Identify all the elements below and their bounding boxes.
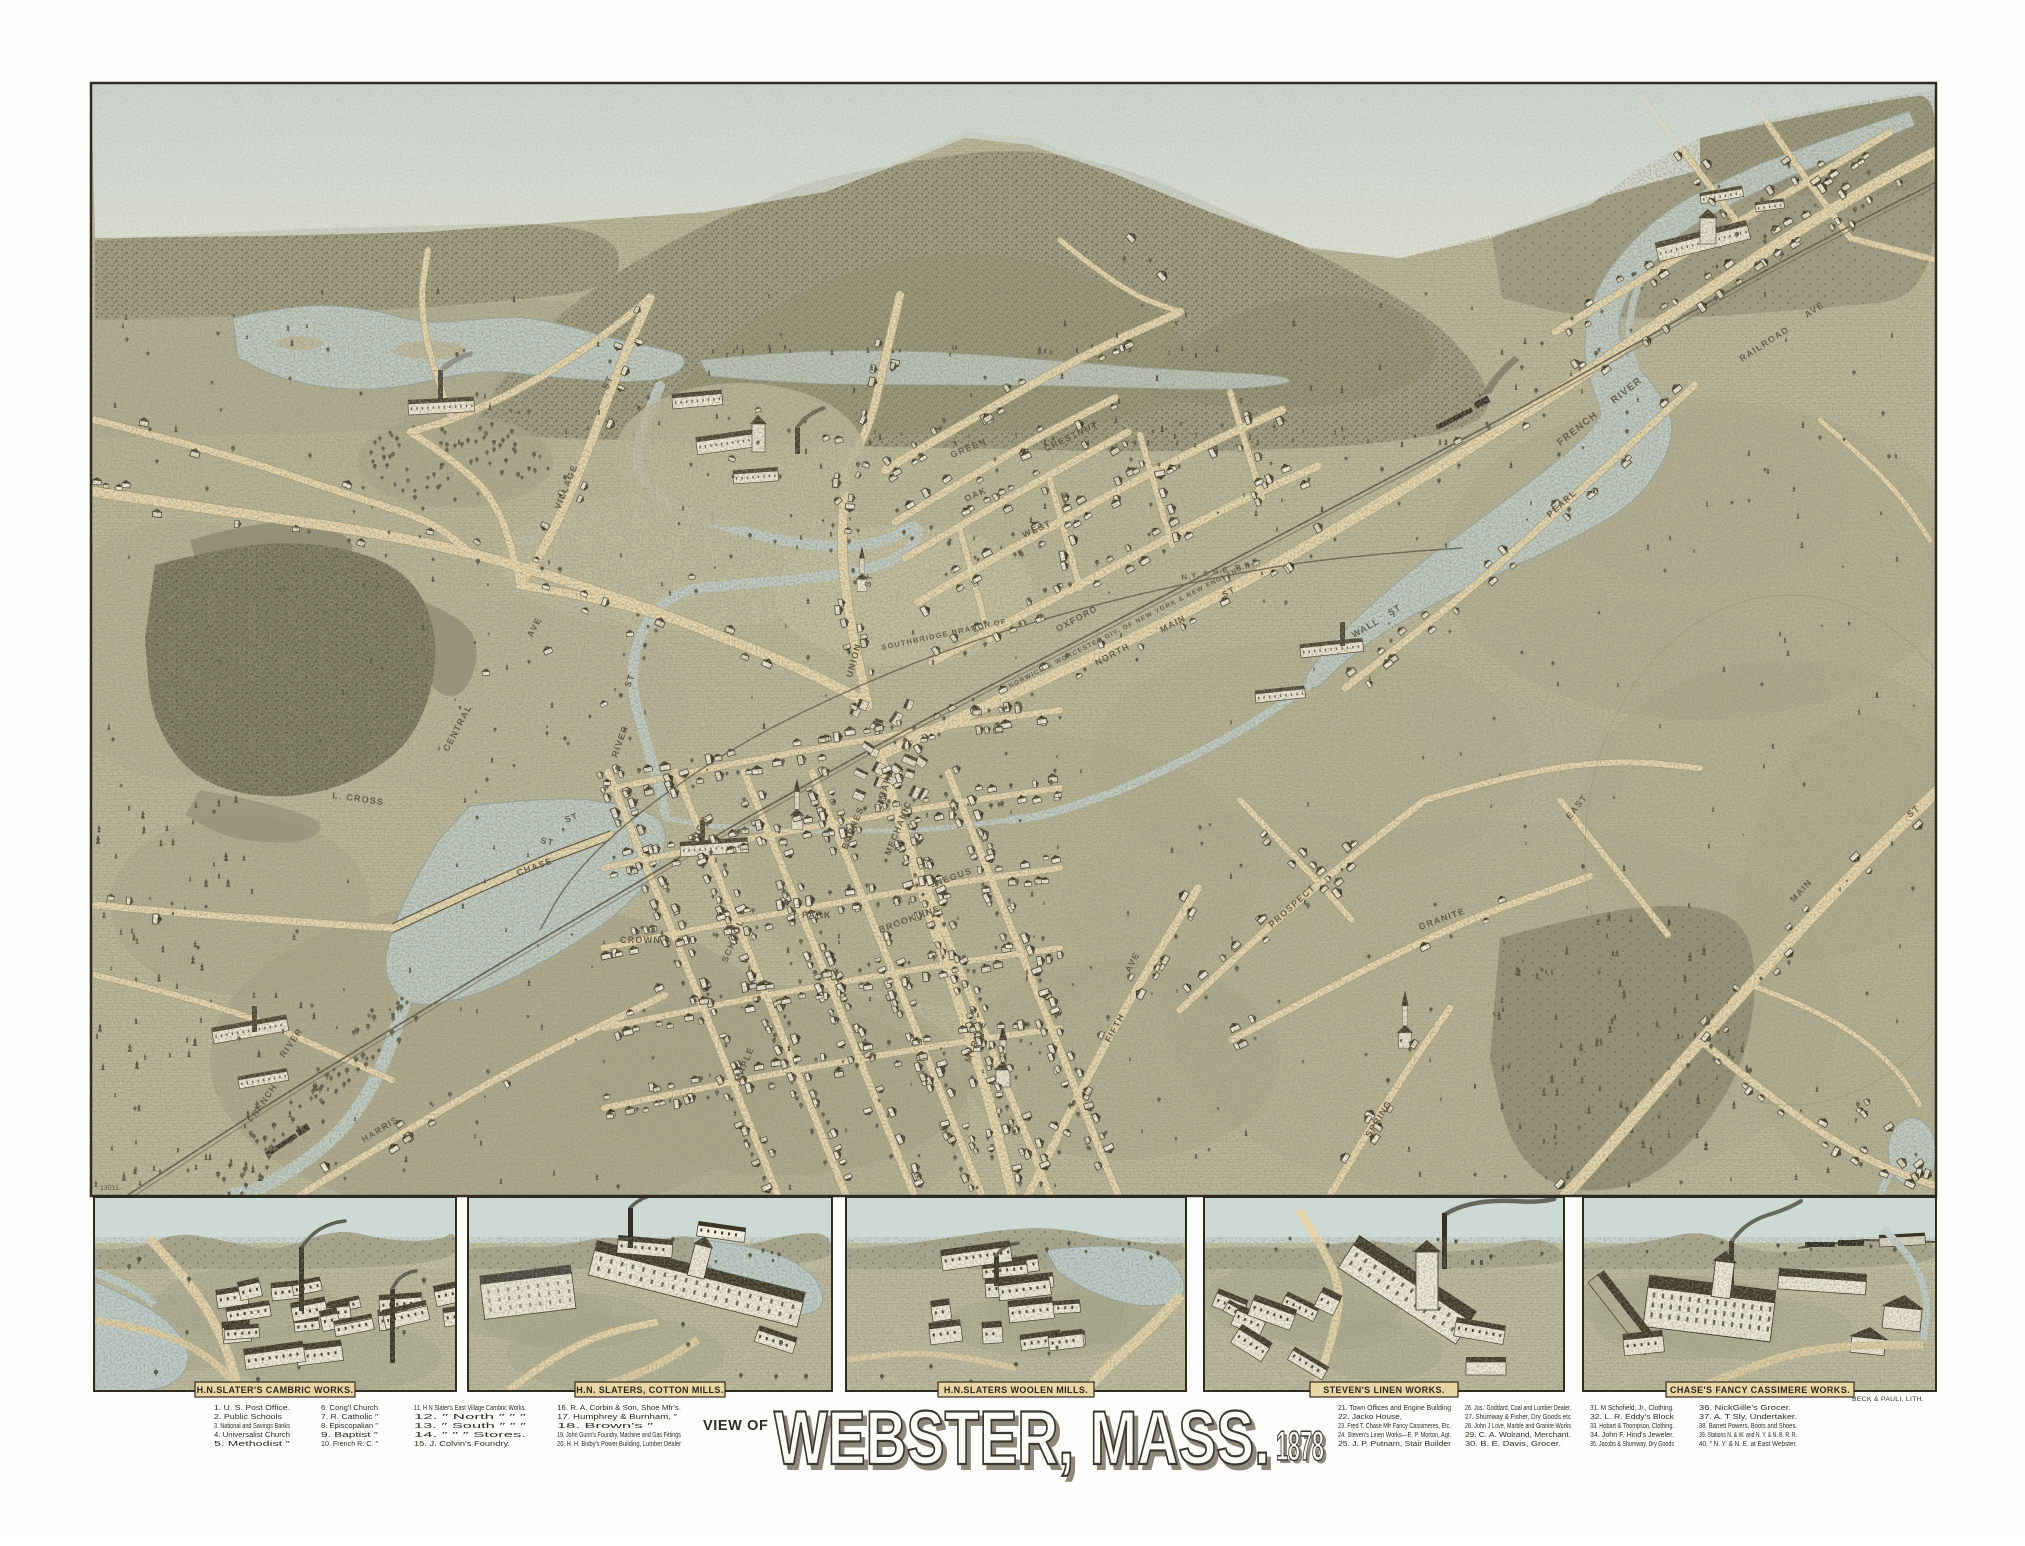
svg-text:17. Humphrey & Burnham, ″: 17. Humphrey & Burnham, ″: [557, 1414, 678, 1421]
svg-text:5. Methodist ″: 5. Methodist ″: [214, 1441, 291, 1448]
svg-text:1878: 1878: [1276, 1422, 1324, 1469]
svg-text:22. Jacko House,: 22. Jacko House,: [1338, 1414, 1402, 1421]
svg-text:33. Hobart & Thompson, Clothin: 33. Hobart & Thompson, Clothing.: [1590, 1423, 1674, 1430]
svg-text:20. H. H. Bixby's Power Buildi: 20. H. H. Bixby's Power Building, Lumber…: [557, 1441, 682, 1448]
svg-text:25. J. P. Putnam, Stair Builde: 25. J. P. Putnam, Stair Builder: [1338, 1441, 1452, 1448]
svg-text:24. Steven's Linen Works—E. P.: 24. Steven's Linen Works—E. P. Morton, A…: [1338, 1432, 1451, 1439]
svg-text:10. French R. C. ″: 10. French R. C. ″: [321, 1441, 379, 1448]
svg-text:38. Barrett Powers, Boots and: 38. Barrett Powers, Boots and Shoes.: [1699, 1423, 1797, 1430]
svg-text:9. Baptist ″: 9. Baptist ″: [321, 1432, 379, 1439]
svg-text:CHASE'S FANCY CASSIMERE WORKS.: CHASE'S FANCY CASSIMERE WORKS.: [1670, 1385, 1850, 1395]
svg-text:14. ″ ″ ″ St: 14. ″ ″ ″ Stores.: [414, 1432, 526, 1439]
svg-text:39. Stations N. & W. and N. Y.: 39. Stations N. & W. and N. Y. & N. B. R…: [1699, 1432, 1797, 1439]
svg-text:H.N. SLATERS, COTTON MILLS.: H.N. SLATERS, COTTON MILLS.: [576, 1385, 723, 1395]
svg-text:35. Jacobs & Shumway, Dry Good: 35. Jacobs & Shumway, Dry Goods: [1590, 1441, 1674, 1448]
svg-text:28. John J Love, Marble and Gr: 28. John J Love, Marble and Granite Work…: [1465, 1423, 1571, 1430]
svg-text:34. John F. Hind's Jeweler.: 34. John F. Hind's Jeweler.: [1590, 1432, 1674, 1439]
svg-text:16. R. A. Corbin & Son, Shoe M: 16. R. A. Corbin & Son, Shoe Mfr's.: [557, 1405, 681, 1412]
svg-text:15. J. Colvin's Foundry.: 15. J. Colvin's Foundry.: [414, 1441, 510, 1448]
svg-text:4. Universalist Church: 4. Universalist Church: [214, 1432, 290, 1439]
svg-text:H.N.SLATER'S CAMBRIC WORKS.: H.N.SLATER'S CAMBRIC WORKS.: [197, 1385, 354, 1395]
svg-text:WEBSTER, MASS.: WEBSTER, MASS.: [774, 1396, 1270, 1481]
svg-text:8. Episcopalian ″: 8. Episcopalian ″: [321, 1423, 379, 1430]
svg-text:2. Public Schools: 2. Public Schools: [214, 1414, 283, 1421]
svg-text:37. A. T Sly, Undertaker.: 37. A. T Sly, Undertaker.: [1699, 1414, 1797, 1421]
svg-text:36. NickGille's Grocer.: 36. NickGille's Grocer.: [1699, 1405, 1791, 1412]
svg-text:40. ″ N. Y. & N. E. at Eas: 40. ″ N. Y. & N. E. at East Webster.: [1699, 1441, 1797, 1448]
svg-text:32. L. R. Eddy's Block: 32. L. R. Eddy's Block: [1590, 1414, 1675, 1421]
svg-text:27. Shumway & Fisher, Dry Good: 27. Shumway & Fisher, Dry Goods etc: [1465, 1414, 1571, 1421]
svg-text:STEVEN'S LINEN WORKS.: STEVEN'S LINEN WORKS.: [1323, 1385, 1445, 1395]
svg-text:18. Brown's ″: 18. Brown's ″: [557, 1423, 654, 1430]
svg-text:29. C. A. Wolrand, Merchant.: 29. C. A. Wolrand, Merchant.: [1465, 1432, 1571, 1439]
svg-text:3. National and Savings Banks: 3. National and Savings Banks: [214, 1423, 290, 1430]
svg-text:19. John Gunn's Foundry, Machi: 19. John Gunn's Foundry, Machine and Gas…: [557, 1432, 681, 1439]
svg-text:31. M Schofield, Jr., Clothin: 31. M Schofield, Jr., Clothing.: [1590, 1405, 1674, 1412]
svg-text:21. Town Offices and Engine Bu: 21. Town Offices and Engine Building: [1338, 1405, 1451, 1412]
svg-text:1. U. S. Post Office.: 1. U. S. Post Office.: [214, 1405, 290, 1412]
svg-text:6. Cong'l Church: 6. Cong'l Church: [321, 1405, 378, 1412]
svg-text:26. Jos.' Goddard, Coal and Lu: 26. Jos.' Goddard, Coal and Lumber Deale…: [1465, 1405, 1571, 1412]
svg-text:7. R. Catholic ″: 7. R. Catholic ″: [321, 1414, 379, 1421]
svg-text:12. ″ North ″: 12. ″ North ″ ″ ″: [414, 1414, 527, 1421]
svg-text:13. ″ South ″: 13. ″ South ″ ″ ″: [414, 1423, 527, 1430]
svg-text:23. Fred T. Chase Mfr Fancy Ca: 23. Fred T. Chase Mfr Fancy Cassimeres, …: [1338, 1423, 1451, 1430]
svg-text:H.N.SLATERS WOOLEN MILLS.: H.N.SLATERS WOOLEN MILLS.: [944, 1385, 1088, 1395]
svg-text:11. H N Slater's East Village: 11. H N Slater's East Village Cambric Wo…: [414, 1405, 526, 1412]
svg-text:VIEW OF: VIEW OF: [703, 1418, 768, 1434]
svg-text:30. B. E. Davis, Grocer.: 30. B. E. Davis, Grocer.: [1465, 1441, 1561, 1448]
svg-text:BECK & PAULI, LITH.: BECK & PAULI, LITH.: [1852, 1396, 1924, 1403]
